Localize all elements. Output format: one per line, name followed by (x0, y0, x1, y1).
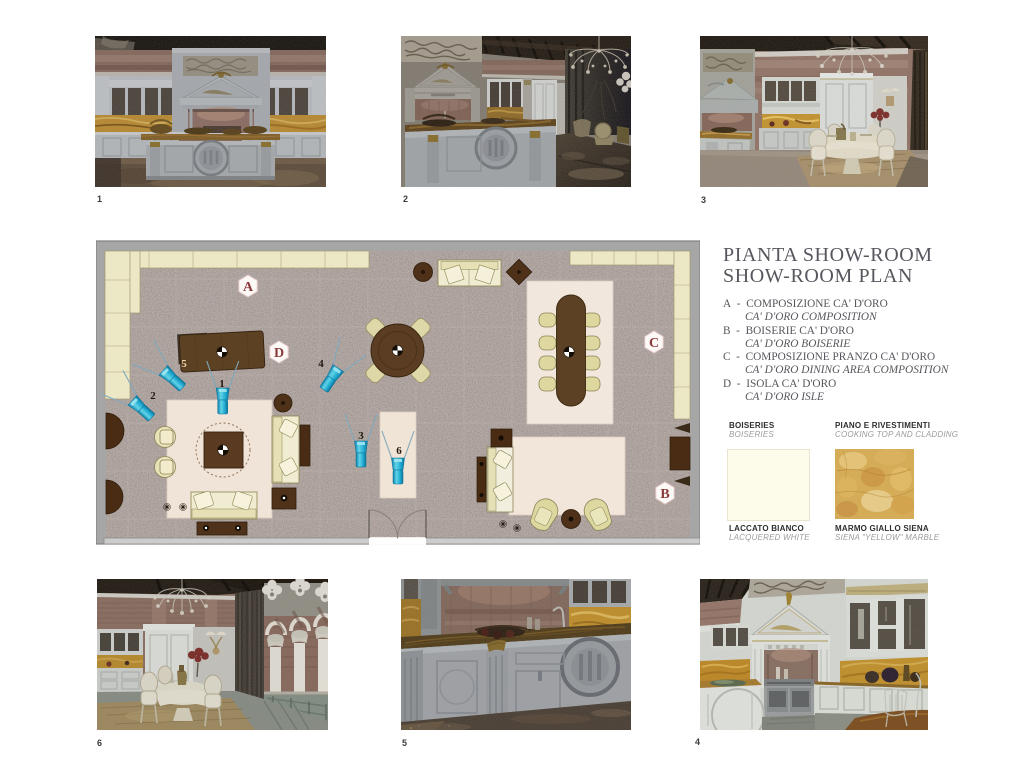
svg-text:6: 6 (396, 445, 402, 457)
svg-text:1: 1 (219, 378, 225, 390)
svg-text:2: 2 (150, 390, 156, 402)
svg-text:A: A (243, 280, 254, 295)
svg-text:4: 4 (318, 358, 324, 370)
svg-text:B: B (660, 487, 669, 502)
svg-text:3: 3 (358, 430, 364, 442)
svg-text:5: 5 (181, 358, 187, 370)
svg-text:D: D (274, 346, 284, 361)
svg-text:C: C (649, 336, 659, 351)
